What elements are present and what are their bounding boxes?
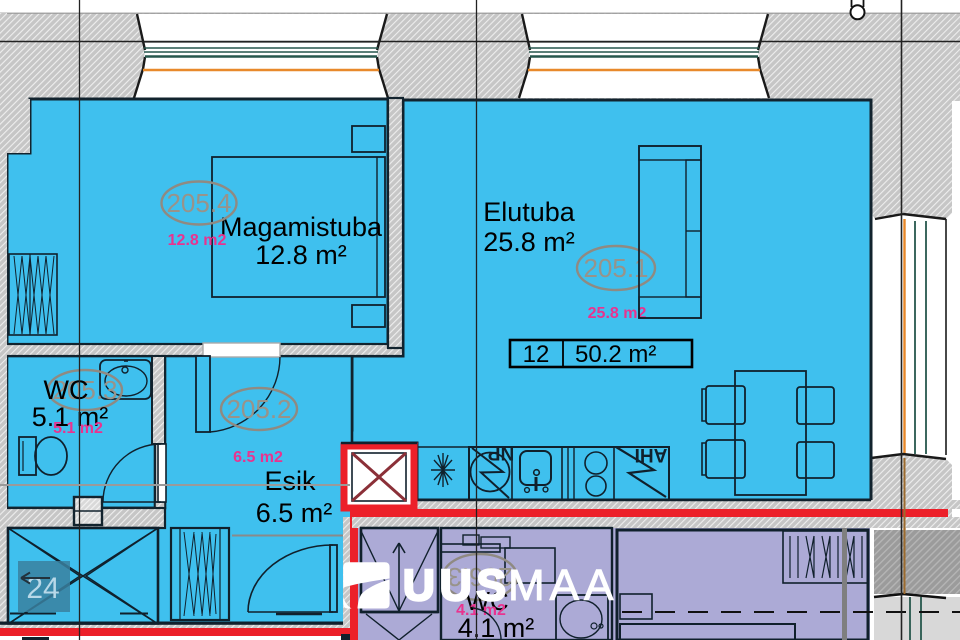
svg-text:WC: WC [44, 375, 89, 405]
svg-text:NP: NP [487, 442, 514, 463]
svg-text:25.8 m²: 25.8 m² [483, 227, 575, 257]
svg-text:5.1 m2: 5.1 m2 [53, 420, 103, 437]
svg-text:MAA: MAA [508, 561, 618, 610]
svg-text:12: 12 [523, 341, 550, 368]
svg-text:Elutuba: Elutuba [483, 197, 576, 227]
svg-text:50.2 m²: 50.2 m² [575, 341, 656, 368]
svg-text:Magamistuba: Magamistuba [220, 212, 383, 242]
svg-text:12.8 m2: 12.8 m2 [168, 232, 227, 249]
svg-text:205.2: 205.2 [226, 394, 291, 424]
svg-text:25.8 m2: 25.8 m2 [588, 305, 647, 322]
svg-text:24: 24 [26, 572, 59, 605]
svg-text:4.1 m²: 4.1 m² [458, 613, 535, 640]
svg-text:AHI: AHI [635, 444, 668, 465]
svg-text:6.5 m2: 6.5 m2 [233, 449, 283, 466]
svg-text:6.5 m²: 6.5 m² [256, 498, 333, 528]
svg-text:UUS: UUS [403, 561, 511, 610]
svg-text:205.4: 205.4 [166, 188, 231, 218]
svg-text:12.8 m²: 12.8 m² [255, 240, 347, 270]
svg-text:Esik: Esik [264, 466, 316, 496]
